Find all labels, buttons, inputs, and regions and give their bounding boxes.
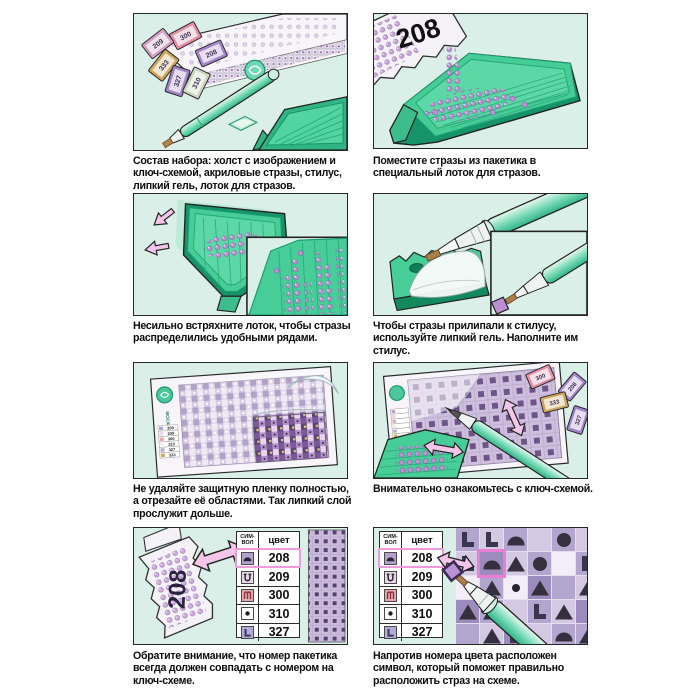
symbol-dot-icon — [242, 608, 253, 619]
chart-cell-L — [576, 552, 588, 575]
symbol-column-header: СИМ-ВОЛ — [380, 532, 402, 549]
chart-cell-tri — [576, 576, 588, 599]
chart-cell-circle — [552, 528, 575, 551]
chart-cell-tri — [552, 600, 575, 623]
chart-cell-dome — [504, 528, 527, 551]
color-column-header: цвет — [402, 536, 442, 546]
caption-5: Не удаляйте защитную пленку полностью, а… — [133, 483, 355, 520]
key-row-327: 327 — [380, 624, 442, 641]
caption-3: Несильно встряхните лоток, чтобы стразы … — [133, 320, 355, 345]
color-number: 327 — [259, 626, 299, 639]
chart-cell-none — [504, 600, 527, 623]
color-number: 300 — [402, 589, 442, 602]
zoom-inset — [490, 225, 587, 315]
chart-cell-circle — [528, 552, 551, 575]
chart-cell-none — [576, 600, 588, 623]
chart-cell-none — [576, 528, 588, 551]
panel-2-illustration: 208 — [373, 13, 588, 149]
chart-cell-none — [552, 552, 575, 575]
study-key-drawing: 300 208 333 327 — [374, 363, 587, 478]
chart-cell-tri — [528, 576, 551, 599]
chart-cell-L — [456, 552, 479, 575]
chart-cell-none — [528, 624, 551, 645]
color-number: 310 — [402, 608, 442, 621]
key-row-209: 209 — [237, 568, 299, 586]
mini-key-table: 208 209 300 310 327 333 — [158, 425, 180, 459]
chart-cell-tri — [504, 552, 527, 575]
chart-cell-L — [456, 528, 479, 551]
caption-7: Обратите внимание, что номер пакетика вс… — [133, 650, 355, 687]
packet-number: 208 — [164, 569, 191, 609]
pour-into-tray-drawing: 208 — [374, 14, 587, 148]
key-row-208: 208 — [237, 550, 299, 568]
chart-cell-tri — [456, 600, 479, 623]
symbol-L-icon — [242, 627, 253, 638]
caption-2: Поместите стразы из пакетика в специальн… — [373, 155, 595, 180]
key-row-310: 310 — [237, 605, 299, 623]
svg-text:333: 333 — [169, 452, 177, 457]
chart-cell-L — [504, 624, 527, 645]
chart-strip — [308, 530, 345, 642]
chart-cell-L — [528, 600, 551, 623]
key-row-208: 208 — [380, 550, 442, 568]
caption-1: Состав набора: холст с изображением и кл… — [133, 155, 355, 192]
chart-cell-dome — [480, 552, 503, 575]
symbol-arches-icon — [385, 590, 396, 601]
shake-tray-drawing — [134, 194, 347, 315]
color-number: 300 — [259, 589, 299, 602]
key-table: СИМ-ВОЛ цвет 208 209 300 310 — [236, 531, 300, 638]
key-row-327: 327 — [237, 624, 299, 641]
brand-logo-icon — [389, 385, 405, 401]
instruction-sheet: 300 209 208 333 327 310 — [0, 0, 700, 700]
zoom-inset — [247, 237, 347, 315]
caption-4: Чтобы стразы прилипали к стилусу, исполь… — [373, 320, 595, 357]
panel-4-illustration — [373, 193, 588, 316]
color-number: 327 — [402, 626, 442, 639]
film-removed-area — [253, 412, 327, 462]
chart-cell-tri — [480, 624, 503, 645]
panel-3-illustration — [133, 193, 348, 316]
chart-cell-tri — [480, 576, 503, 599]
color-number: 310 — [259, 608, 299, 621]
panel-8-illustration: СИМ-ВОЛ цвет 208 209 300 310 — [373, 527, 588, 645]
chart-cell-none — [528, 528, 551, 551]
key-row-310: 310 — [380, 605, 442, 623]
gel-stylus-drawing — [374, 194, 587, 315]
symbol-arches-icon — [242, 590, 253, 601]
chart-cell-dome — [552, 624, 575, 645]
symbol-dot-icon — [385, 608, 396, 619]
chart-cell-L — [480, 528, 503, 551]
color-column-header: цвет — [259, 536, 299, 546]
chart-cell-none — [552, 576, 575, 599]
chart-cell-tri — [480, 600, 503, 623]
chart-cell-none — [456, 576, 479, 599]
key-row-209: 209 — [380, 568, 442, 586]
symbol-dome-icon — [385, 553, 396, 564]
symbol-hook-icon — [385, 572, 396, 583]
color-number: 209 — [259, 571, 299, 584]
panel-5-illustration: МОСФА 208 209 300 310 327 333 — [133, 362, 348, 479]
chart-grid — [456, 528, 588, 645]
color-number: 208 — [402, 552, 442, 565]
canvas-sheet: МОСФА 208 209 300 310 327 333 — [151, 366, 344, 477]
symbol-hook-icon — [242, 572, 253, 583]
symbol-column-header: СИМ-ВОЛ — [237, 532, 259, 549]
key-row-300: 300 — [237, 587, 299, 605]
panel-7-illustration: 208 СИМ-ВОЛ цвет 208 209 300 — [133, 527, 348, 645]
chart-cell-tri — [576, 624, 588, 645]
key-row-300: 300 — [380, 587, 442, 605]
color-number: 209 — [402, 571, 442, 584]
chart-cell-none — [456, 624, 479, 645]
color-number: 208 — [259, 552, 299, 565]
caption-8: Напротив номера цвета расположен символ,… — [373, 650, 595, 687]
key-table: СИМ-ВОЛ цвет 208 209 300 310 — [379, 531, 443, 638]
film-canvas-drawing: МОСФА 208 209 300 310 327 333 — [134, 363, 347, 478]
symbol-dome-icon — [242, 553, 253, 564]
caption-6: Внимательно ознакомьтесь с ключ-схемой. — [373, 483, 595, 495]
kit-contents-drawing: 300 209 208 333 327 310 — [134, 14, 347, 150]
panel-6-illustration: 300 208 333 327 — [373, 362, 588, 479]
symbol-L-icon — [385, 627, 396, 638]
brand-logo-icon — [156, 387, 173, 404]
panel-1-illustration: 300 209 208 333 327 310 — [133, 13, 348, 151]
chart-cell-dot — [504, 576, 527, 599]
